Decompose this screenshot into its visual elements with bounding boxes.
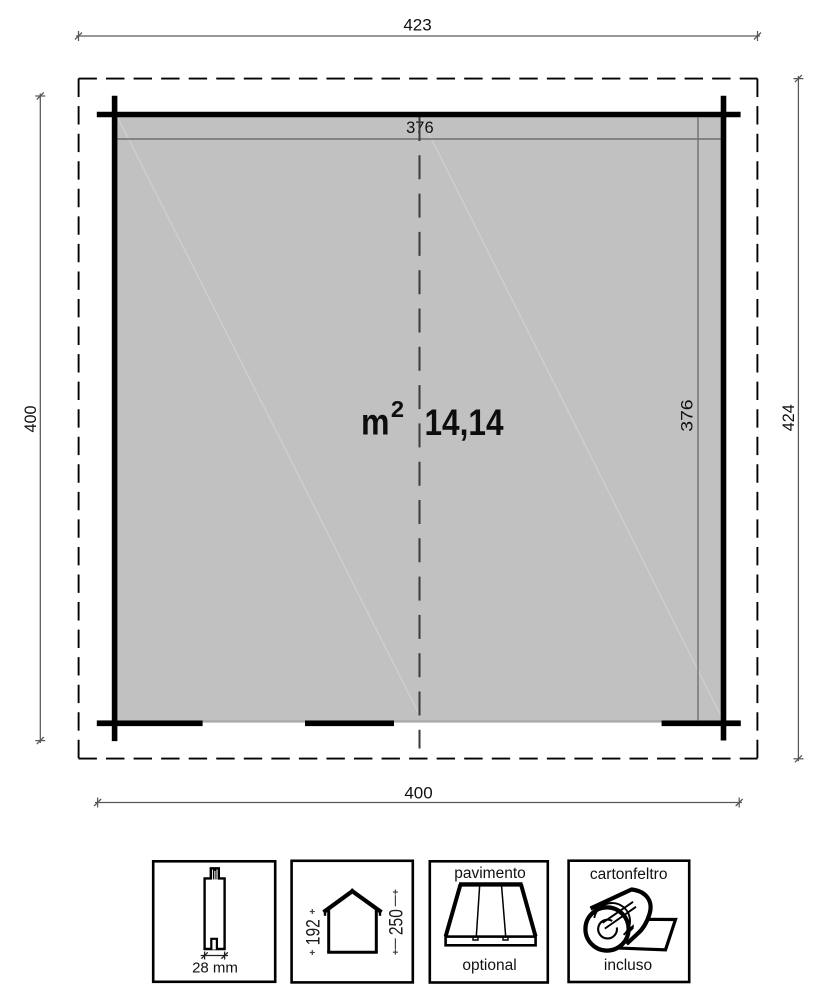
svg-text:400: 400	[404, 784, 432, 803]
svg-text:2: 2	[391, 396, 404, 422]
svg-text:192: 192	[303, 919, 324, 945]
svg-text:28 mm: 28 mm	[192, 960, 238, 977]
svg-text:14,14: 14,14	[425, 401, 504, 443]
svg-text:376: 376	[679, 399, 697, 431]
svg-text:optional: optional	[462, 957, 516, 974]
svg-text:incluso: incluso	[604, 957, 652, 974]
svg-text:pavimento: pavimento	[454, 865, 526, 882]
svg-text:cartonfeltro: cartonfeltro	[590, 866, 668, 883]
svg-text:m: m	[361, 400, 390, 442]
svg-text:424: 424	[779, 404, 798, 431]
svg-text:400: 400	[21, 406, 40, 433]
svg-text:423: 423	[403, 16, 431, 35]
svg-text:250: 250	[386, 909, 407, 935]
